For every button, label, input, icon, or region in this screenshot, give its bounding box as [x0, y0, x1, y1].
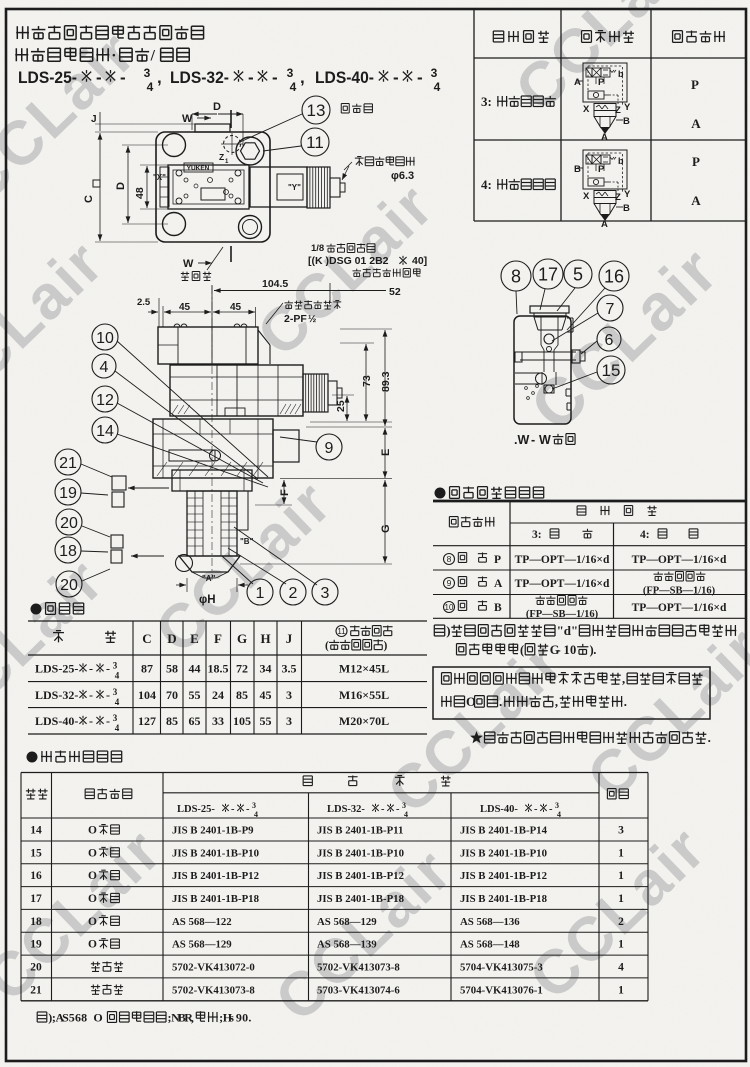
svg-text:C: C	[142, 631, 151, 646]
svg-text:B: B	[623, 116, 630, 127]
svg-text:3: 3	[113, 661, 118, 671]
svg-text:3: 3	[286, 714, 292, 728]
svg-text:LDS-32-: LDS-32-	[35, 688, 78, 702]
svg-text:b: b	[618, 69, 624, 79]
svg-text:20: 20	[30, 962, 42, 974]
svg-text:LDS-32-: LDS-32-	[170, 68, 229, 87]
svg-text:17: 17	[30, 893, 42, 905]
svg-text:15: 15	[30, 847, 42, 859]
svg-text:LDS-25-: LDS-25-	[35, 662, 78, 676]
svg-text:.: .	[248, 1010, 251, 1024]
svg-text:9: 9	[236, 1010, 242, 1024]
svg-text:O: O	[93, 1010, 102, 1024]
svg-text:5: 5	[573, 264, 583, 284]
svg-text:JIS B 2401-1B-P11: JIS B 2401-1B-P11	[317, 825, 403, 837]
svg-text:3.5: 3.5	[282, 662, 297, 676]
svg-text:2: 2	[618, 916, 624, 928]
svg-text:17: 17	[538, 264, 558, 284]
svg-text:AS 568—139: AS 568—139	[317, 939, 377, 951]
svg-text:JIS B 2401-1B-P18: JIS B 2401-1B-P18	[172, 893, 260, 905]
svg-text:16: 16	[604, 266, 624, 286]
svg-text:E: E	[190, 631, 199, 646]
svg-text:-: -	[381, 804, 385, 815]
svg-text:2.5: 2.5	[137, 297, 151, 308]
svg-text:P: P	[691, 77, 699, 92]
svg-text:A: A	[601, 132, 608, 143]
svg-text:8: 8	[447, 554, 452, 564]
svg-text:5702-VK413073-8: 5702-VK413073-8	[317, 962, 400, 974]
svg-text:F: F	[279, 489, 291, 496]
svg-text:4: 4	[100, 359, 109, 376]
svg-text:TP—OPT—1/16×d: TP—OPT—1/16×d	[515, 578, 610, 590]
svg-text:4: 4	[147, 80, 154, 94]
svg-text:16: 16	[30, 870, 42, 882]
svg-text:104: 104	[138, 688, 156, 702]
svg-text:Z: Z	[219, 152, 224, 162]
svg-text:"B": "B"	[240, 537, 254, 546]
svg-text:-: -	[246, 804, 250, 815]
svg-text:3: 3	[286, 688, 292, 702]
svg-text:11: 11	[306, 133, 324, 152]
svg-text:-: -	[534, 804, 538, 815]
svg-text:½: ½	[308, 314, 316, 325]
svg-text:14: 14	[30, 825, 42, 837]
svg-text:JIS B 2401-1B-P18: JIS B 2401-1B-P18	[317, 893, 405, 905]
svg-text:18: 18	[30, 916, 42, 928]
svg-text:3: 3	[287, 66, 294, 80]
svg-text:1: 1	[618, 847, 624, 859]
svg-text:3: 3	[555, 801, 559, 810]
svg-text:B: B	[494, 602, 502, 614]
svg-text:1/8: 1/8	[311, 243, 324, 254]
svg-text:58: 58	[166, 662, 178, 676]
svg-text:48: 48	[134, 187, 146, 199]
svg-text:G: G	[237, 631, 247, 646]
svg-text:TP—OPT—1/16×d: TP—OPT—1/16×d	[632, 602, 727, 614]
svg-text:-: -	[96, 68, 102, 87]
svg-text:2: 2	[289, 585, 298, 602]
svg-text:-: -	[106, 688, 110, 702]
svg-text:LDS-40-: LDS-40-	[480, 804, 518, 815]
svg-text:(: (	[325, 640, 329, 652]
svg-text:6: 6	[605, 332, 614, 349]
svg-text:.: .	[499, 695, 502, 709]
svg-text:5702-VK413072-0: 5702-VK413072-0	[172, 962, 255, 974]
svg-text:21: 21	[30, 984, 42, 996]
svg-text:LDS-32-: LDS-32-	[327, 804, 365, 815]
svg-text:F: F	[214, 631, 222, 646]
svg-text:JIS B 2401-1B-P9: JIS B 2401-1B-P9	[172, 825, 254, 837]
svg-text:D: D	[167, 631, 176, 646]
svg-text:-: -	[549, 804, 553, 815]
svg-text:85: 85	[166, 714, 178, 728]
svg-text:D: D	[213, 101, 221, 113]
svg-text:-: -	[393, 68, 399, 87]
svg-text:[(K )DSG 01 2B2: [(K )DSG 01 2B2	[308, 255, 389, 267]
svg-text:YUKEN: YUKEN	[187, 165, 210, 172]
svg-text:Z: Z	[615, 105, 621, 116]
svg-text:87: 87	[141, 662, 153, 676]
svg-text:55: 55	[189, 688, 201, 702]
svg-text:-: -	[272, 68, 278, 87]
svg-text:A: A	[574, 77, 581, 88]
svg-text:b: b	[618, 156, 624, 166]
svg-text:s: s	[229, 1010, 234, 1024]
svg-text:4: 4	[115, 671, 120, 681]
svg-text:2-PF: 2-PF	[284, 313, 307, 325]
svg-text:,: ,	[555, 695, 558, 709]
svg-text:1: 1	[618, 870, 624, 882]
svg-text:φ6.3: φ6.3	[391, 170, 414, 182]
svg-text:4: 4	[115, 697, 120, 707]
svg-text:-: -	[89, 714, 93, 728]
svg-text:55: 55	[260, 714, 272, 728]
svg-text:(: (	[520, 643, 524, 657]
svg-text:-: -	[531, 433, 535, 447]
svg-text:": "	[571, 623, 578, 638]
svg-text:O: O	[88, 916, 97, 928]
svg-text:Y: Y	[624, 102, 631, 113]
svg-text:M20×70L: M20×70L	[339, 714, 389, 728]
svg-text:15: 15	[602, 361, 621, 380]
svg-text:A: A	[691, 193, 701, 208]
svg-text:1: 1	[564, 643, 570, 657]
svg-text:18.5: 18.5	[208, 662, 229, 676]
svg-text:O: O	[88, 939, 97, 951]
svg-text:25: 25	[335, 400, 347, 412]
svg-text:-: -	[89, 688, 93, 702]
svg-text:-: -	[106, 662, 110, 676]
svg-text:104.5: 104.5	[262, 278, 288, 290]
svg-text:3: 3	[144, 66, 151, 80]
svg-text:65: 65	[189, 714, 201, 728]
svg-text:127: 127	[138, 714, 156, 728]
svg-text:45: 45	[179, 302, 191, 313]
svg-text:0: 0	[570, 643, 576, 657]
svg-text:21: 21	[59, 455, 77, 472]
svg-text:/: /	[150, 47, 156, 64]
svg-text:O: O	[88, 870, 97, 882]
svg-text:3: 3	[431, 66, 438, 80]
svg-text:-: -	[120, 68, 126, 87]
svg-text:LDS-40-: LDS-40-	[35, 714, 78, 728]
svg-text:4: 4	[290, 80, 297, 94]
svg-text:4:: 4:	[640, 529, 650, 541]
svg-text:5702-VK413073-8: 5702-VK413073-8	[172, 984, 255, 996]
svg-text:5704-VK413076-1: 5704-VK413076-1	[460, 984, 543, 996]
svg-text:): )	[383, 640, 387, 652]
svg-text:J: J	[91, 114, 97, 125]
svg-text:4: 4	[434, 80, 441, 94]
svg-text:TP—OPT—1/16×d: TP—OPT—1/16×d	[515, 554, 610, 566]
svg-text:8: 8	[511, 266, 521, 286]
svg-text:O: O	[88, 825, 97, 837]
svg-text:85: 85	[236, 688, 248, 702]
svg-text:4: 4	[404, 810, 408, 819]
svg-text:-: -	[417, 68, 423, 87]
svg-text:Z: Z	[615, 192, 621, 203]
svg-text:3: 3	[113, 687, 118, 697]
svg-text:4:: 4:	[481, 177, 492, 192]
svg-text:4: 4	[115, 723, 120, 733]
svg-text:H: H	[260, 631, 270, 646]
svg-text:11: 11	[337, 627, 346, 636]
svg-text:X: X	[583, 191, 590, 202]
svg-text:P: P	[494, 554, 501, 566]
svg-text:JIS B 2401-1B-P12: JIS B 2401-1B-P12	[172, 870, 259, 882]
svg-text:89.3: 89.3	[380, 371, 392, 392]
svg-text:-: -	[557, 643, 561, 657]
svg-text:,: ,	[622, 672, 625, 686]
svg-text:φH: φH	[199, 594, 216, 606]
svg-text:,: ,	[191, 1010, 194, 1024]
svg-text:B: B	[623, 203, 630, 214]
svg-text:40]: 40]	[412, 255, 427, 267]
svg-text:-: -	[231, 804, 235, 815]
svg-text:.: .	[593, 643, 596, 657]
svg-text:19: 19	[59, 485, 77, 502]
svg-text:A: A	[601, 219, 608, 230]
svg-text:LDS-40-: LDS-40-	[315, 68, 374, 87]
svg-text:45: 45	[260, 688, 272, 702]
svg-text:W: W	[182, 113, 193, 125]
svg-text:X: X	[583, 104, 590, 115]
svg-text:,: ,	[300, 68, 305, 87]
svg-text:34: 34	[260, 662, 272, 676]
svg-text:"A": "A"	[202, 574, 216, 583]
svg-text:AS 568—129: AS 568—129	[172, 939, 232, 951]
svg-text:JIS B 2401-1B-P14: JIS B 2401-1B-P14	[460, 825, 548, 837]
svg-text:18: 18	[59, 543, 77, 560]
svg-text:JIS B 2401-1B-P12: JIS B 2401-1B-P12	[317, 870, 404, 882]
svg-text:3: 3	[618, 825, 624, 837]
svg-text:73: 73	[361, 375, 373, 387]
svg-text:19: 19	[30, 939, 42, 951]
svg-text:LDS-25-: LDS-25-	[18, 68, 77, 87]
svg-text:1: 1	[618, 893, 624, 905]
svg-text:13: 13	[307, 101, 326, 120]
svg-text:12: 12	[96, 392, 114, 409]
svg-text:Y: Y	[624, 189, 631, 200]
svg-text:4: 4	[557, 810, 561, 819]
svg-text:JIS B 2401-1B-P10: JIS B 2401-1B-P10	[460, 847, 547, 859]
svg-text:.W: .W	[514, 433, 529, 447]
svg-text:9: 9	[325, 440, 334, 457]
svg-text:): )	[446, 623, 450, 638]
svg-text:JIS B 2401-1B-P12: JIS B 2401-1B-P12	[460, 870, 547, 882]
svg-text:-: -	[396, 804, 400, 815]
svg-text:AS 568—148: AS 568—148	[460, 939, 520, 951]
svg-text:"Y": "Y"	[288, 183, 301, 192]
svg-text:5703-VK413074-6: 5703-VK413074-6	[317, 984, 400, 996]
svg-text:10: 10	[96, 330, 114, 347]
svg-text:4: 4	[254, 810, 258, 819]
svg-text:.: .	[708, 730, 711, 745]
svg-text:3: 3	[321, 585, 330, 602]
svg-text:J: J	[286, 631, 293, 646]
svg-text:AS 568—122: AS 568—122	[172, 916, 232, 928]
svg-text:A: A	[494, 578, 503, 590]
svg-text:1: 1	[618, 939, 624, 951]
svg-text:105: 105	[233, 714, 251, 728]
svg-text:P: P	[692, 154, 700, 169]
svg-text:6: 6	[75, 1010, 81, 1024]
svg-text:G: G	[380, 524, 392, 533]
svg-text:B: B	[574, 164, 581, 175]
svg-text:(FP—SB—1/16): (FP—SB—1/16)	[526, 609, 599, 620]
svg-text:-: -	[248, 68, 254, 87]
svg-text:5: 5	[69, 1010, 75, 1024]
svg-text:0: 0	[242, 1010, 248, 1024]
svg-text:20: 20	[60, 515, 78, 532]
svg-text:72: 72	[236, 662, 248, 676]
svg-text:14: 14	[96, 423, 114, 440]
svg-text:-: -	[89, 662, 93, 676]
svg-text:33: 33	[212, 714, 224, 728]
svg-text:M12×45L: M12×45L	[339, 662, 389, 676]
svg-text:7: 7	[606, 301, 615, 318]
svg-text:45: 45	[230, 302, 242, 313]
svg-text:JIS B 2401-1B-P10: JIS B 2401-1B-P10	[172, 847, 259, 859]
svg-text:C: C	[83, 195, 95, 203]
svg-text:1: 1	[618, 984, 624, 996]
svg-text:W: W	[539, 433, 551, 447]
svg-text:A: A	[691, 116, 701, 131]
svg-text:LDS-25-: LDS-25-	[177, 804, 215, 815]
svg-text:JIS B 2401-1B-P10: JIS B 2401-1B-P10	[317, 847, 404, 859]
svg-text:TP—OPT—1/16×d: TP—OPT—1/16×d	[632, 554, 727, 566]
svg-text:4: 4	[618, 962, 624, 974]
svg-text:24: 24	[212, 688, 224, 702]
svg-text:·: ·	[111, 47, 116, 64]
svg-text:52: 52	[389, 286, 401, 298]
svg-text:20: 20	[60, 577, 78, 594]
svg-text:3: 3	[252, 801, 256, 810]
svg-text:D: D	[115, 182, 127, 190]
svg-text:O: O	[88, 893, 97, 905]
svg-text:AS 568—129: AS 568—129	[317, 916, 377, 928]
svg-text:(FP—SB—1/16): (FP—SB—1/16)	[643, 586, 716, 597]
svg-text:3: 3	[402, 801, 406, 810]
svg-text:3:: 3:	[532, 529, 542, 541]
svg-text:.: .	[624, 695, 627, 709]
svg-text:,: ,	[157, 68, 162, 87]
svg-text:1: 1	[256, 585, 265, 602]
svg-text:70: 70	[166, 688, 178, 702]
svg-text:8: 8	[81, 1010, 87, 1024]
svg-text:5704-VK413075-3: 5704-VK413075-3	[460, 962, 543, 974]
svg-text:E: E	[380, 449, 392, 456]
svg-text:10: 10	[445, 603, 454, 612]
svg-text:44: 44	[189, 662, 201, 676]
svg-text:JIS B 2401-1B-P18: JIS B 2401-1B-P18	[460, 893, 548, 905]
svg-text:-: -	[106, 714, 110, 728]
svg-text:M16×55L: M16×55L	[339, 688, 389, 702]
svg-text:9: 9	[447, 578, 452, 588]
svg-text:AS 568—136: AS 568—136	[460, 916, 520, 928]
svg-text:3: 3	[113, 713, 118, 723]
svg-text:3:: 3:	[481, 94, 492, 109]
svg-text:": "	[557, 623, 564, 638]
svg-text:O: O	[88, 847, 97, 859]
svg-text:W: W	[183, 258, 194, 270]
